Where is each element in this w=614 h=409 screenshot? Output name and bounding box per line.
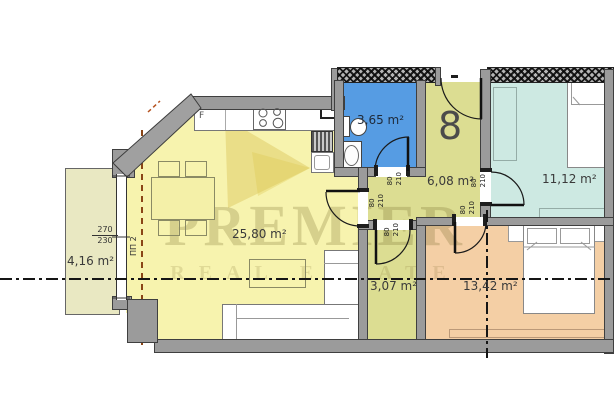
area-label-bedroom-large: 13,42 m² [463, 279, 518, 293]
door-jamb [480, 168, 492, 172]
door-jamb [357, 224, 369, 228]
fridge-label: F [199, 111, 204, 121]
wall-bottom [154, 339, 614, 353]
wall-hatched-top-right [487, 67, 614, 83]
hidden-edge-dash [148, 101, 160, 112]
door-dimensions-bedroom-large: 80210 [459, 201, 476, 214]
dining-table [151, 177, 215, 220]
unit-number: 8 [438, 104, 462, 148]
door-jamb [357, 188, 369, 192]
window-width: 270 [92, 225, 118, 236]
dishwasher-inner [314, 155, 330, 170]
sofa-seat-line [236, 318, 349, 319]
door-jamb [406, 165, 410, 176]
entrance-tick [451, 75, 458, 78]
double-bed-pillow [527, 228, 557, 244]
double-bed-pillow [560, 228, 590, 244]
area-label-bedroom-small: 11,12 m² [542, 172, 597, 186]
door-dimensions-bedroom-small: 80210 [470, 174, 487, 187]
dining-chair [185, 220, 207, 236]
door-jamb [373, 219, 377, 230]
wall-bedrooms-divider [416, 217, 614, 226]
door-dimensions-bathroom: 80210 [386, 172, 403, 185]
area-label-bathroom: 3,65 m² [357, 113, 404, 127]
door-opening-bedroom-large [455, 217, 484, 226]
bathroom-sink-basin [344, 145, 359, 166]
section-line-horizontal [0, 278, 614, 280]
wall-top-kitchen [189, 96, 345, 110]
wall-step-bottom-left [127, 299, 158, 343]
dining-chair [158, 161, 180, 177]
door-jamb [374, 165, 378, 176]
single-bed-pillow [571, 82, 606, 105]
window-height: 230 [92, 236, 118, 246]
door-dimensions-living: 80210 [368, 194, 385, 207]
dining-chair [158, 220, 180, 236]
door-dimensions-storage: 80210 [383, 223, 400, 236]
washing-machine [311, 131, 333, 152]
wall-bathroom-left [334, 80, 344, 177]
door-opening-living [358, 191, 368, 225]
dining-chair [185, 161, 207, 177]
door-jamb [480, 202, 492, 206]
area-label-storage: 3,07 m² [370, 279, 417, 293]
area-label-hallway: 6,08 m² [427, 174, 474, 188]
window-sill-strip [449, 329, 607, 338]
area-label-living: 25,80 m² [232, 227, 287, 241]
window-code: ПП 2 [129, 224, 138, 256]
floor-plan: PREMIER REAL ESTATE F [0, 0, 614, 409]
door-jamb [452, 214, 456, 226]
window-dimensions: 270 230 [92, 225, 118, 245]
wall-storage-bedroom-large [416, 217, 426, 343]
area-label-balcony: 4,16 m² [67, 254, 114, 268]
coffee-table [249, 259, 306, 288]
kitchen-cabinet-divider [225, 108, 226, 130]
wall-bathroom-right [416, 80, 426, 177]
entrance-jamb [435, 67, 441, 86]
door-jamb [409, 219, 413, 230]
wall-right [604, 69, 614, 354]
wardrobe [493, 87, 517, 161]
